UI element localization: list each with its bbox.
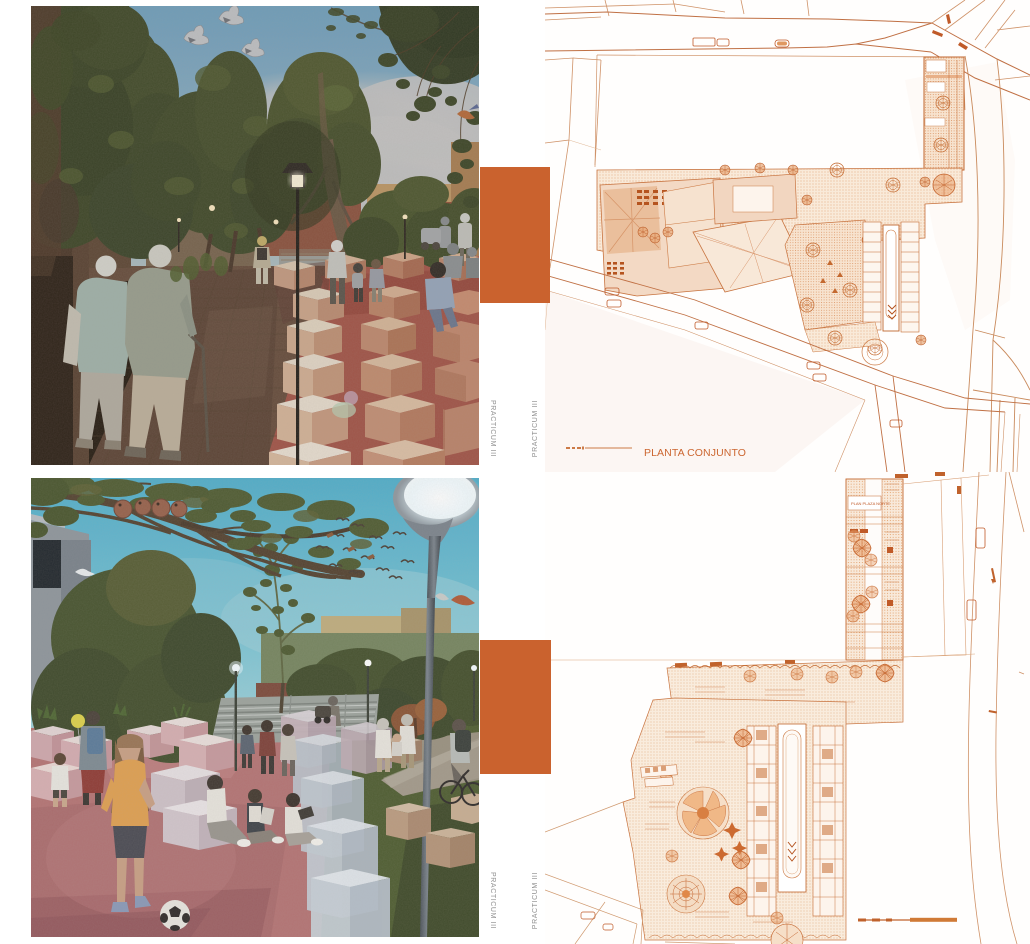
svg-text:PLAN PLAZA NORTE: PLAN PLAZA NORTE [851,501,890,506]
svg-text:PLANTA CONJUNTO: PLANTA CONJUNTO [644,447,746,459]
